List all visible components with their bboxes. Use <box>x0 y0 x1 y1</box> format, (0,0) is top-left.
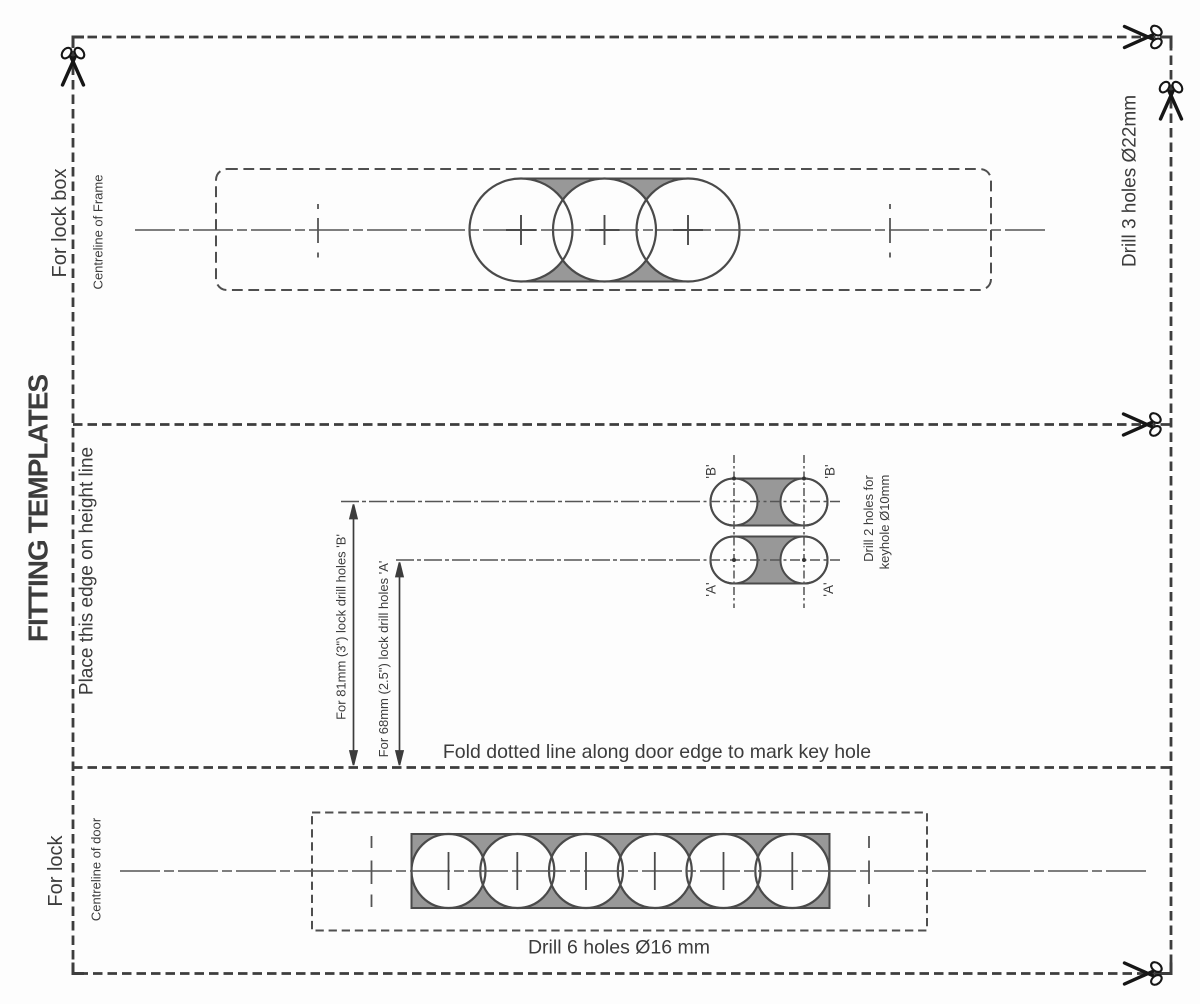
svg-text:'B': 'B' <box>704 464 719 478</box>
svg-text:'B': 'B' <box>823 464 838 478</box>
svg-text:Drill 6 holes Ø16 mm: Drill 6 holes Ø16 mm <box>528 937 710 959</box>
svg-text:For 68mm (2.5") lock drill hol: For 68mm (2.5") lock drill holes 'A' <box>376 561 391 758</box>
svg-text:'A': 'A' <box>821 582 836 596</box>
svg-text:FITTING TEMPLATES: FITTING TEMPLATES <box>23 375 54 642</box>
svg-text:Drill 3 holes Ø22mm: Drill 3 holes Ø22mm <box>1120 95 1141 267</box>
svg-text:For 81mm (3") lock drill holes: For 81mm (3") lock drill holes 'B' <box>334 534 349 720</box>
svg-text:For lock: For lock <box>45 834 67 906</box>
svg-text:Place this edge on height line: Place this edge on height line <box>77 447 98 695</box>
svg-text:Fold dotted line along door ed: Fold dotted line along door edge to mark… <box>443 741 871 763</box>
svg-text:Centreline of Frame: Centreline of Frame <box>91 175 106 290</box>
svg-text:For lock box: For lock box <box>49 169 71 278</box>
svg-text:Drill 2 holes for: Drill 2 holes for <box>861 474 876 561</box>
svg-text:'A': 'A' <box>704 582 719 596</box>
svg-text:keyhole Ø10mm: keyhole Ø10mm <box>877 475 892 570</box>
svg-text:Centreline of door: Centreline of door <box>89 817 104 921</box>
